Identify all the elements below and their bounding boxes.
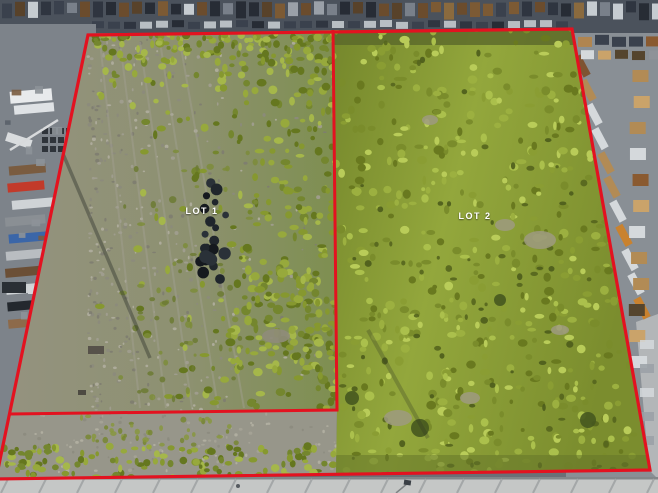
lot2-label: LOT 2 bbox=[458, 211, 491, 221]
lot1-label: LOT 1 bbox=[185, 206, 218, 216]
lower-strip-area bbox=[0, 410, 341, 482]
aerial-photo: LOT 1 LOT 2 bbox=[0, 0, 658, 493]
aerial-photo-canvas: LOT 1 LOT 2 bbox=[0, 0, 658, 493]
concrete-road-bottom bbox=[0, 477, 658, 493]
